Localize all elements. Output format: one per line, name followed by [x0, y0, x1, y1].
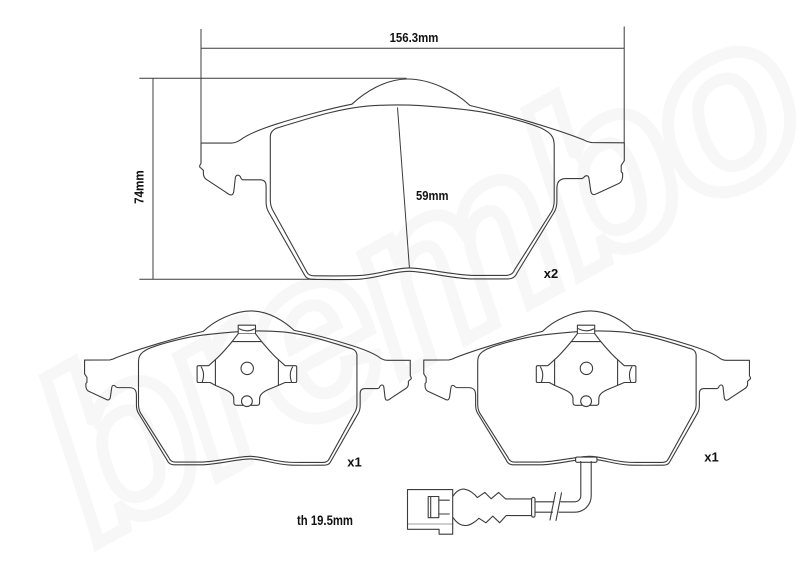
svg-text:59mm: 59mm — [416, 188, 449, 203]
svg-text:th 19.5mm: th 19.5mm — [297, 513, 353, 528]
svg-text:x2: x2 — [544, 266, 558, 281]
svg-text:x1: x1 — [704, 450, 718, 465]
svg-text:156.3mm: 156.3mm — [390, 30, 439, 45]
svg-text:x1: x1 — [347, 455, 361, 470]
svg-text:74mm: 74mm — [132, 170, 147, 204]
